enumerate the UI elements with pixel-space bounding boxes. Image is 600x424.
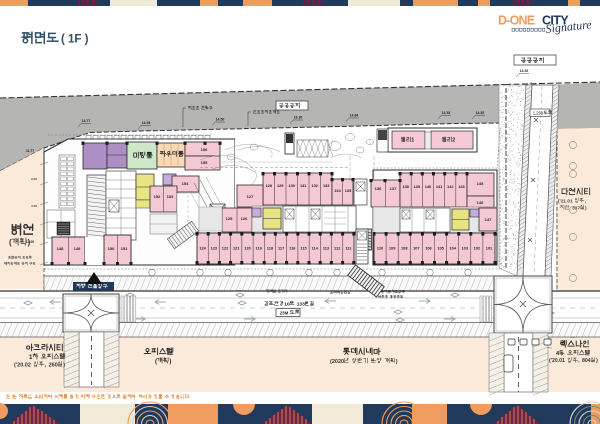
svg-text:142: 142: [447, 184, 454, 189]
svg-text:101: 101: [486, 246, 493, 251]
svg-text:2: 2: [452, 138, 455, 144]
svg-text:153: 153: [167, 194, 174, 199]
svg-text:130: 130: [288, 183, 295, 188]
svg-text:132: 132: [311, 183, 318, 188]
svg-text:131: 131: [300, 183, 307, 188]
svg-text:141: 141: [436, 184, 443, 189]
svg-text:11.77: 11.77: [26, 149, 34, 153]
svg-text:119: 119: [256, 246, 263, 251]
svg-text:): ): [63, 362, 65, 368]
svg-text:104: 104: [449, 246, 456, 251]
svg-text:16.30: 16.30: [294, 116, 303, 120]
svg-text:128: 128: [265, 183, 272, 188]
svg-text:1: 1: [411, 138, 414, 144]
svg-text:146: 146: [477, 200, 484, 205]
svg-text:14.77: 14.77: [82, 119, 91, 123]
svg-text:111: 111: [345, 246, 352, 251]
svg-text:14.93: 14.93: [142, 121, 151, 125]
svg-text:9.00: 9.00: [31, 177, 37, 181]
svg-text:): ): [596, 358, 598, 364]
svg-text:125: 125: [226, 216, 233, 221]
svg-text:145: 145: [477, 181, 484, 186]
svg-text:133: 133: [323, 183, 330, 188]
svg-text:117: 117: [278, 246, 284, 251]
svg-text:14.50: 14.50: [216, 118, 225, 122]
svg-text:118: 118: [267, 246, 274, 251]
svg-text:134: 134: [334, 188, 341, 193]
svg-text:154: 154: [182, 181, 189, 186]
svg-text:138: 138: [402, 184, 409, 189]
svg-text:113: 113: [323, 246, 330, 251]
svg-text:137: 137: [390, 186, 397, 191]
svg-text:105: 105: [437, 246, 444, 251]
svg-text:): ): [396, 359, 398, 365]
svg-text:122: 122: [222, 246, 229, 251]
svg-text:103: 103: [462, 246, 469, 251]
svg-text:14.00: 14.00: [26, 240, 34, 244]
svg-text:D-ONE: D-ONE: [498, 14, 535, 28]
svg-text:('21.01: ('21.01: [558, 198, 573, 204]
svg-text:151: 151: [121, 246, 128, 251]
svg-text:( 1F ): ( 1F ): [61, 34, 89, 46]
svg-text:120: 120: [244, 246, 251, 251]
svg-text:155: 155: [201, 160, 208, 165]
svg-text:124: 124: [199, 246, 206, 251]
svg-text:110: 110: [377, 246, 383, 251]
svg-text:('20.02: ('20.02: [14, 362, 31, 368]
svg-text:112: 112: [334, 246, 341, 251]
svg-text:148: 148: [57, 246, 64, 251]
svg-text:): ): [169, 358, 171, 365]
svg-text:14.84: 14.84: [350, 114, 359, 118]
svg-text:116: 116: [289, 246, 296, 251]
svg-text:14.52: 14.52: [476, 111, 485, 115]
svg-text:23M: 23M: [280, 311, 289, 316]
svg-text:106: 106: [425, 246, 432, 251]
svg-text:(2020: (2020: [330, 359, 344, 365]
svg-text:149: 149: [74, 246, 81, 251]
svg-text:139: 139: [414, 184, 421, 189]
svg-text:804: 804: [582, 358, 591, 364]
svg-text:129: 129: [277, 183, 284, 188]
svg-text:260: 260: [49, 362, 58, 368]
svg-text:(: (: [9, 238, 12, 247]
svg-text:('20.01: ('20.01: [549, 358, 565, 364]
svg-text:14.92: 14.92: [520, 69, 529, 73]
svg-text:108: 108: [401, 246, 408, 251]
svg-text:107: 107: [413, 246, 420, 251]
svg-text:140: 140: [425, 184, 432, 189]
svg-text:14.53: 14.53: [442, 111, 451, 115]
svg-text:123: 123: [211, 246, 218, 251]
svg-text:114: 114: [312, 246, 319, 251]
svg-text:115: 115: [300, 246, 307, 251]
svg-text:152: 152: [154, 194, 161, 199]
svg-text:109: 109: [389, 246, 396, 251]
svg-text:147: 147: [485, 217, 492, 222]
svg-text:143: 143: [458, 184, 465, 189]
svg-text:1,299: 1,299: [533, 111, 544, 116]
svg-text:156: 156: [201, 147, 208, 152]
svg-text:126: 126: [241, 216, 248, 221]
svg-text:133: 133: [297, 302, 305, 308]
svg-text:10: 10: [284, 302, 290, 308]
svg-text:135: 135: [345, 188, 352, 193]
svg-text:121: 121: [233, 246, 240, 251]
svg-text:102: 102: [474, 246, 481, 251]
svg-text:127: 127: [247, 194, 254, 199]
svg-text:150: 150: [108, 246, 115, 251]
svg-text:136: 136: [375, 186, 382, 191]
svg-text:3.00: 3.00: [31, 204, 37, 208]
